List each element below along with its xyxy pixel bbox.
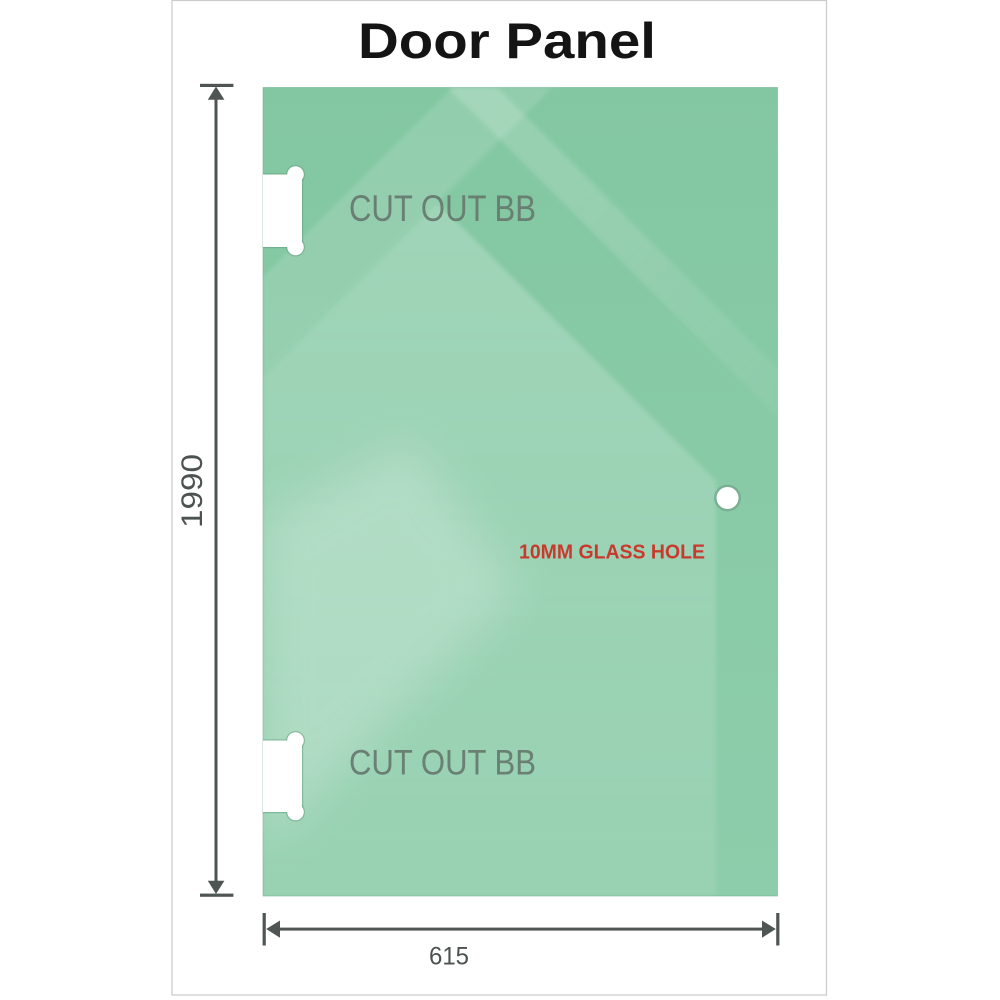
svg-text:1990: 1990 (176, 454, 209, 528)
svg-text:CUT OUT BB: CUT OUT BB (349, 744, 536, 783)
svg-text:CUT OUT BB: CUT OUT BB (349, 188, 536, 229)
svg-text:10MM GLASS HOLE: 10MM GLASS HOLE (519, 542, 705, 564)
svg-text:Door Panel: Door Panel (358, 13, 656, 69)
svg-text:615: 615 (429, 943, 469, 971)
